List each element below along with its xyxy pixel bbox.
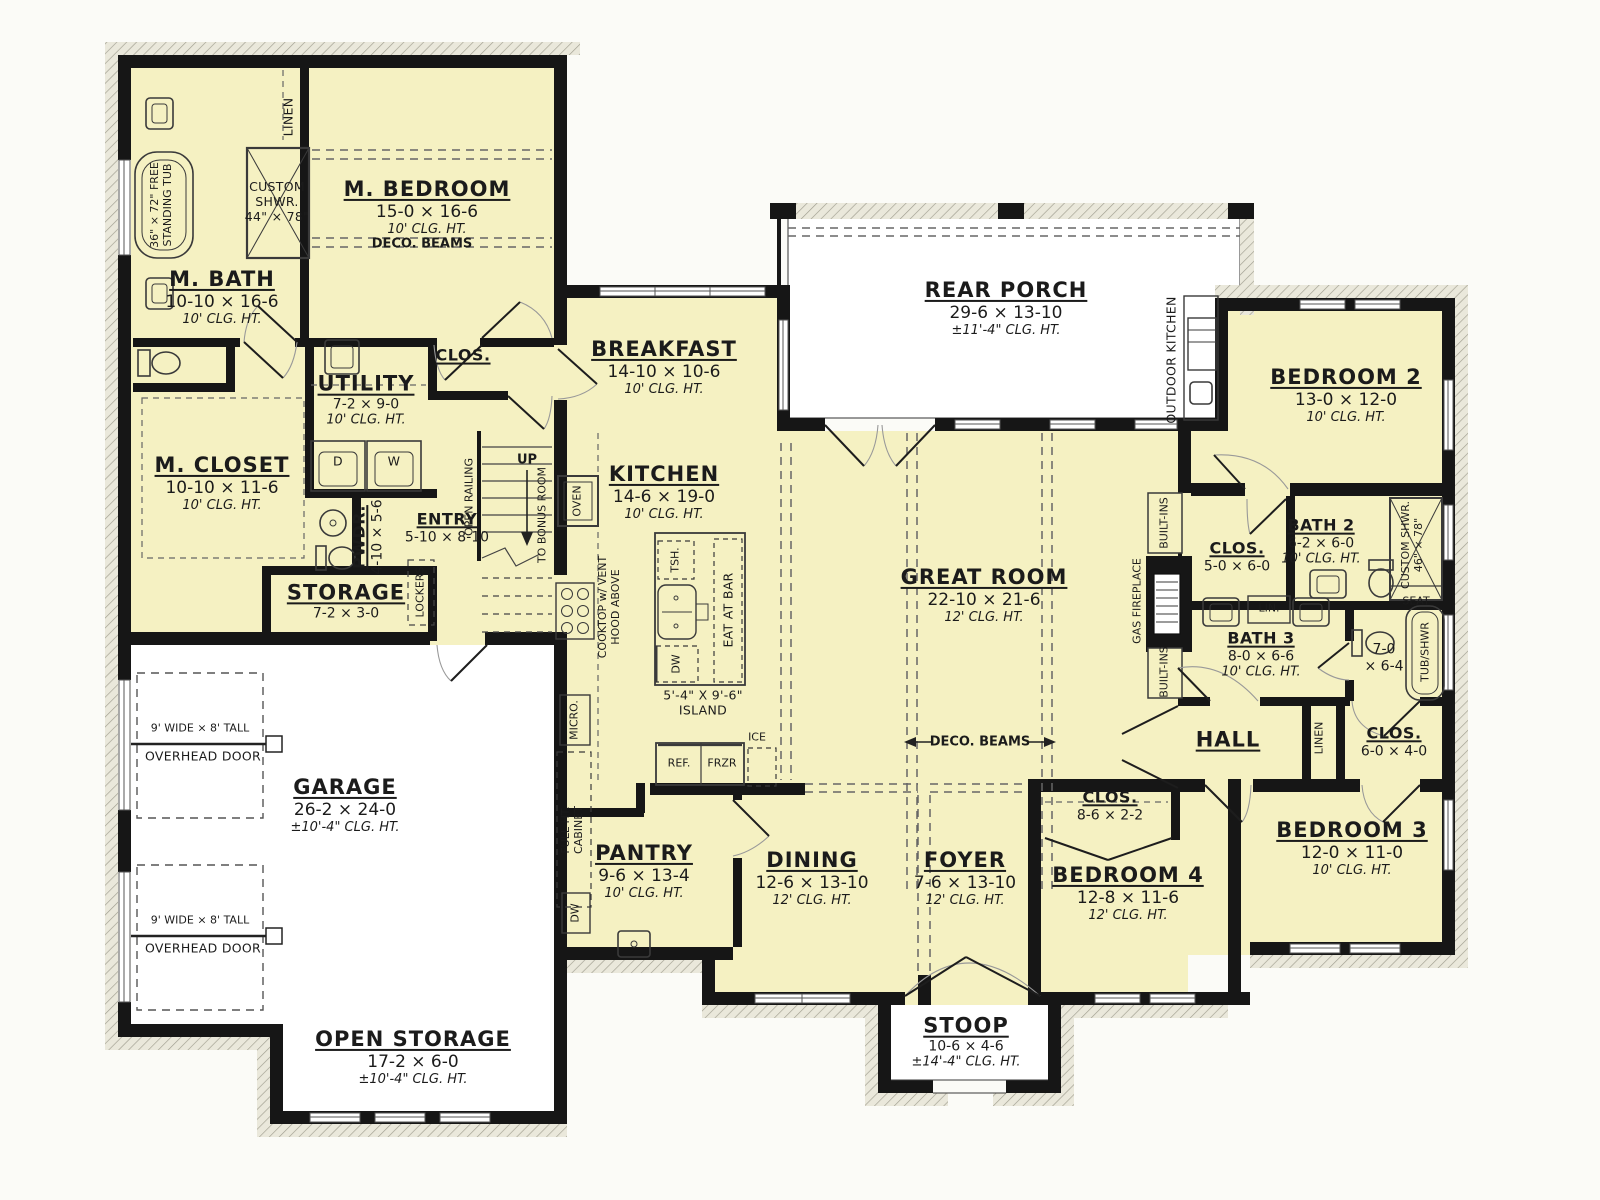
room-label-rear-porch: REAR PORCH29-6 × 13-10±11'-4" CLG. HT. — [925, 278, 1088, 338]
dryer-label: D — [333, 455, 343, 470]
linen-label-mbath: LINEN — [282, 98, 297, 137]
ref-label: REF. — [668, 758, 691, 771]
deco-beams-label-greatroom: DECO. BEAMS — [930, 734, 1031, 749]
room-label-m-bedroom: M. BEDROOM15-0 × 16-610' CLG. HT. — [344, 177, 511, 237]
room-label-m-bath: M. BATH10-10 × 16-610' CLG. HT. — [165, 267, 278, 327]
room-label-dining: DINING12-6 × 13-1012' CLG. HT. — [755, 848, 868, 908]
room-label-utility: UTILITY7-2 × 9-010' CLG. HT. — [318, 372, 415, 429]
custom-shower-label-master: CUSTOMSHWR.44" × 78" — [245, 180, 309, 224]
floorplan-drawing — [0, 0, 1600, 1200]
washer-label: W — [388, 455, 401, 470]
room-label-m-closet: M. CLOSET10-10 × 11-610' CLG. HT. — [155, 453, 290, 513]
outdoor-kitchen-label: OUTDOOR KITCHEN — [1165, 296, 1180, 423]
dw-island-label: DW — [671, 654, 684, 673]
overhead-door2-size-label: 9' WIDE × 8' TALL — [151, 915, 249, 928]
room-label-bath2: BATH 26-2 × 6-010' CLG. HT. — [1281, 517, 1360, 568]
linen-label-hall: LINEN — [1314, 722, 1327, 755]
room-label-great-room: GREAT ROOM22-10 × 21-612' CLG. HT. — [901, 565, 1068, 625]
cooktop-label: COOKTOP w/ VENTHOOD ABOVE — [597, 556, 623, 659]
fireplace-firebox — [1154, 574, 1180, 634]
room-label-clos-bed2: CLOS.5-0 × 6-0 — [1204, 539, 1270, 574]
floor-plan: M. BEDROOM15-0 × 16-610' CLG. HT. M. BAT… — [0, 0, 1600, 1200]
room-label-storage: STORAGE7-2 × 3-0 — [287, 580, 405, 621]
room-label-kitchen: KITCHEN14-6 × 19-010' CLG. HT. — [609, 462, 719, 522]
overhead-door1-size-label: 9' WIDE × 8' TALL — [151, 723, 249, 736]
room-label-pantry: PANTRY9-6 × 13-410' CLG. HT. — [595, 841, 693, 901]
room-label-bedroom3: BEDROOM 312-0 × 11-010' CLG. HT. — [1276, 818, 1427, 878]
tub-shwr-label: TUB/SHWR — [1420, 622, 1433, 682]
to-bonus-room-label: TO BONUS ROOM — [537, 467, 550, 563]
room-label-clos-bed4: CLOS.8-6 × 2-2 — [1077, 788, 1143, 823]
room-label-breakfast: BREAKFAST14-10 × 10-610' CLG. HT. — [591, 337, 737, 397]
oven-label: OVEN — [572, 485, 585, 516]
built-ins-label-top: BUILT-INS — [1159, 497, 1172, 549]
up-label: UP — [517, 452, 537, 467]
island-dim-label: 5'-4" X 9'-6"ISLAND — [663, 688, 743, 718]
full-ht-cabinet-label: FULL HT.CABINET — [560, 806, 586, 854]
room-label-bedroom4: BEDROOM 412-8 × 11-612' CLG. HT. — [1052, 863, 1203, 923]
room-label-bath3: BATH 38-0 × 6-610' CLG. HT. — [1221, 630, 1300, 681]
room-label-foyer: FOYER7-6 × 13-1012' CLG. HT. — [914, 848, 1016, 908]
room-label-open-storage: OPEN STORAGE17-2 × 6-0±10'-4" CLG. HT. — [315, 1027, 511, 1087]
freestanding-tub-label: 36" × 72" FREESTANDING TUB — [149, 162, 175, 248]
overhead-door2-label: OVERHEAD DOOR — [145, 942, 261, 957]
deco-beams-label-mbedroom: DECO. BEAMS — [372, 236, 473, 251]
gas-fireplace-label: GAS FIREPLACE — [1132, 558, 1145, 644]
ice-label: ICE — [748, 732, 766, 745]
built-ins-label-bottom: BUILT-INS — [1159, 646, 1172, 698]
seat-label: SEAT — [1402, 596, 1429, 609]
lin-label: LIN. — [1258, 603, 1279, 616]
lockers-label: LOCKERS — [415, 567, 428, 618]
room-label-clos-utility: CLOS. — [435, 347, 490, 366]
room-label-stoop: STOOP10-6 × 4-6±14'-4" CLG. HT. — [911, 1014, 1020, 1071]
room-label-clos-hall: CLOS.6-0 × 4-0 — [1361, 724, 1427, 759]
overhead-door1-label: OVERHEAD DOOR — [145, 750, 261, 765]
dw-pantry-label: DW — [570, 903, 583, 922]
room-label-hall: HALL — [1196, 728, 1261, 753]
frzr-label: FRZR — [707, 758, 736, 771]
eat-at-bar-label: EAT AT BAR — [722, 572, 737, 647]
room-label-bedroom2: BEDROOM 213-0 × 12-010' CLG. HT. — [1270, 365, 1421, 425]
custom-shower2-label: CUSTOM SHWR.46" × 78" — [1400, 501, 1426, 589]
trash-label: TSH. — [670, 547, 683, 572]
micro-label: MICRO. — [569, 700, 582, 740]
room-label-tub-room: 7-0× 6-4 — [1364, 641, 1403, 674]
open-railing-label: OPEN RAILING — [464, 458, 477, 536]
room-label-garage: GARAGE26-2 × 24-0±10'-4" CLG. HT. — [290, 775, 399, 835]
room-label-pwdr: PWDR.4-10 × 5-6 — [350, 499, 385, 574]
